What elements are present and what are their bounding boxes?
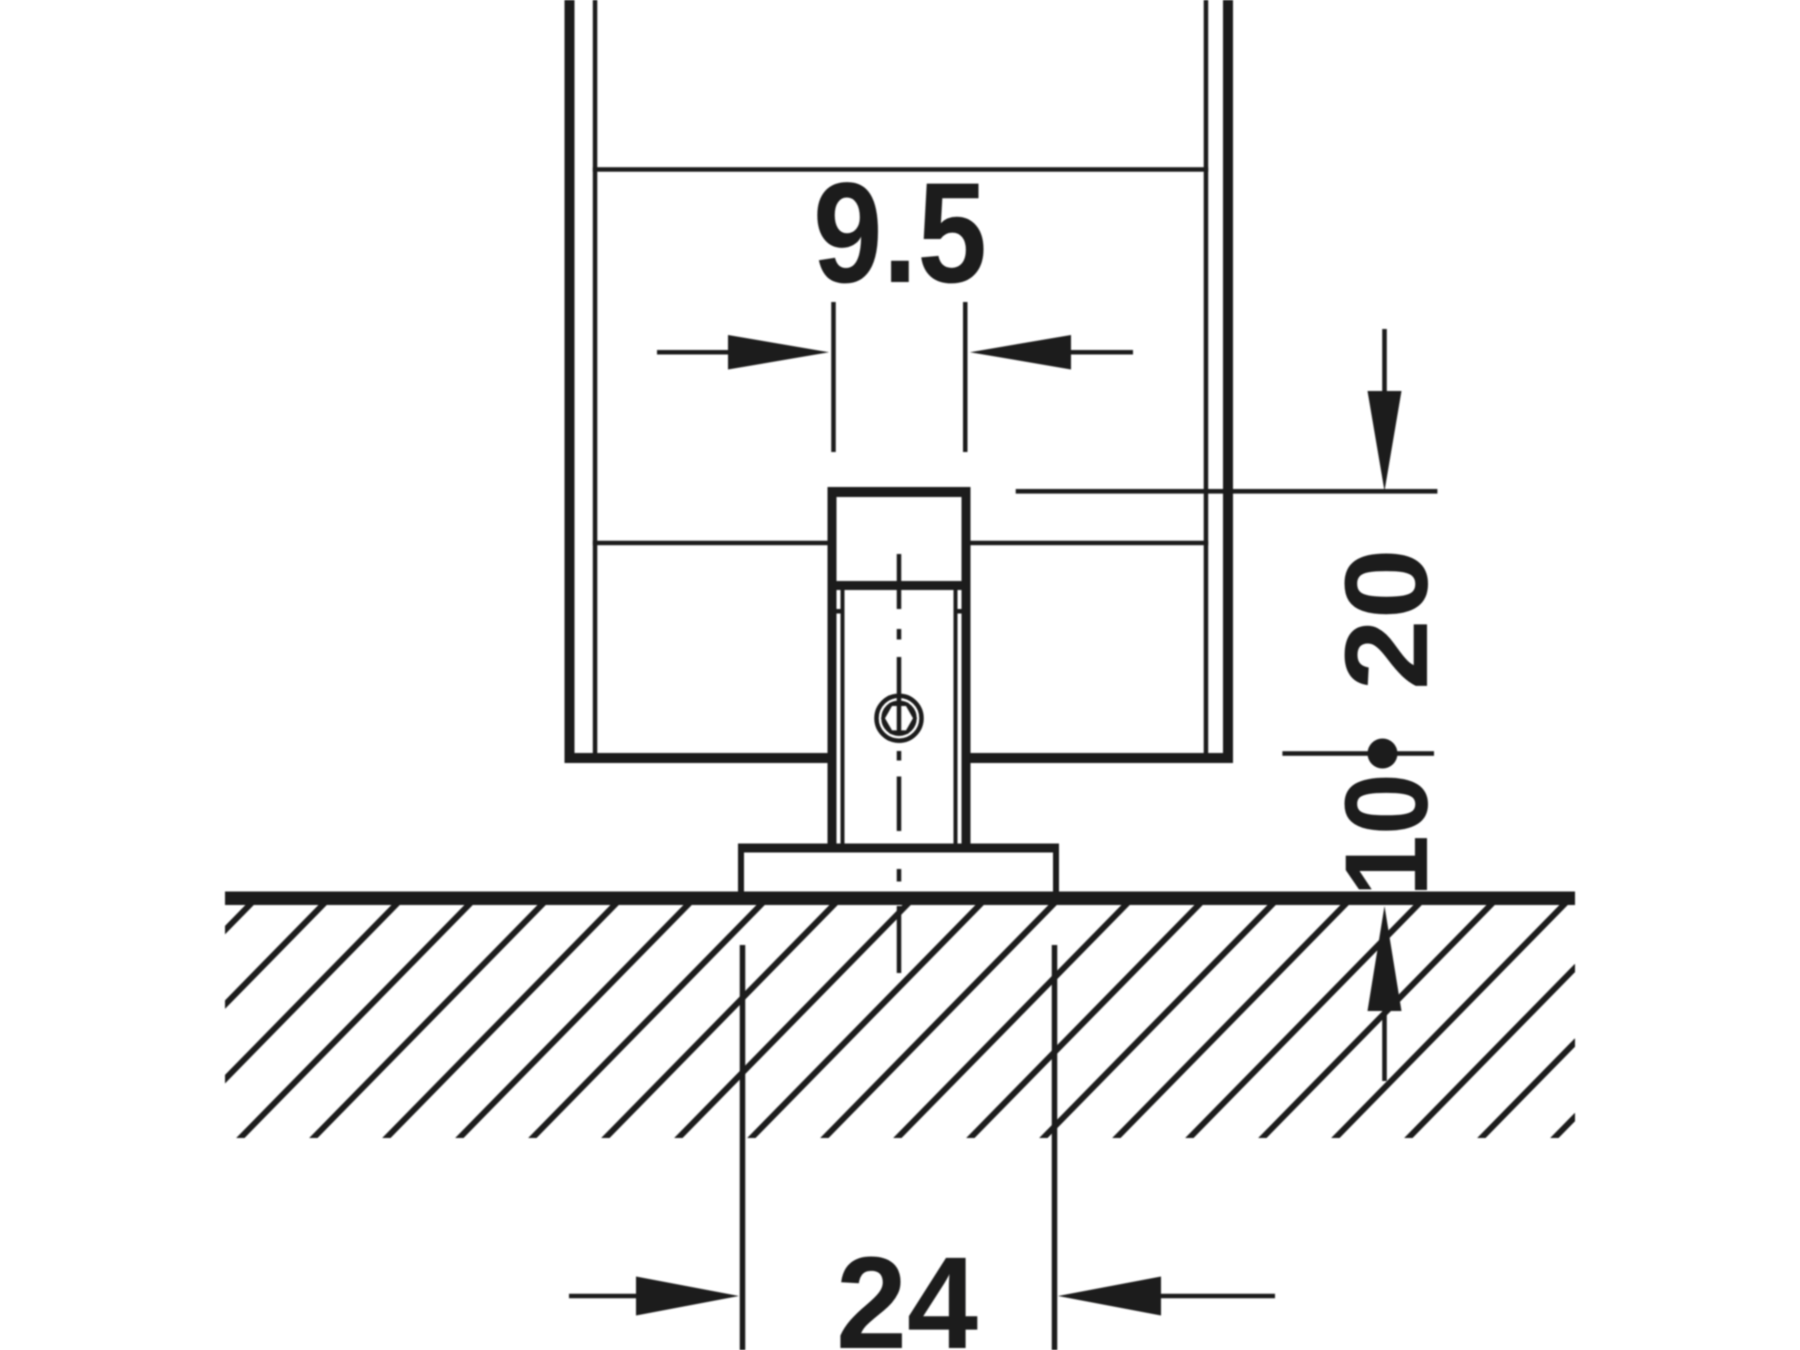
svg-text:20: 20 <box>1321 548 1453 690</box>
svg-text:10: 10 <box>1321 773 1453 897</box>
svg-text:9.5: 9.5 <box>813 154 987 313</box>
svg-text:24: 24 <box>836 1229 978 1350</box>
